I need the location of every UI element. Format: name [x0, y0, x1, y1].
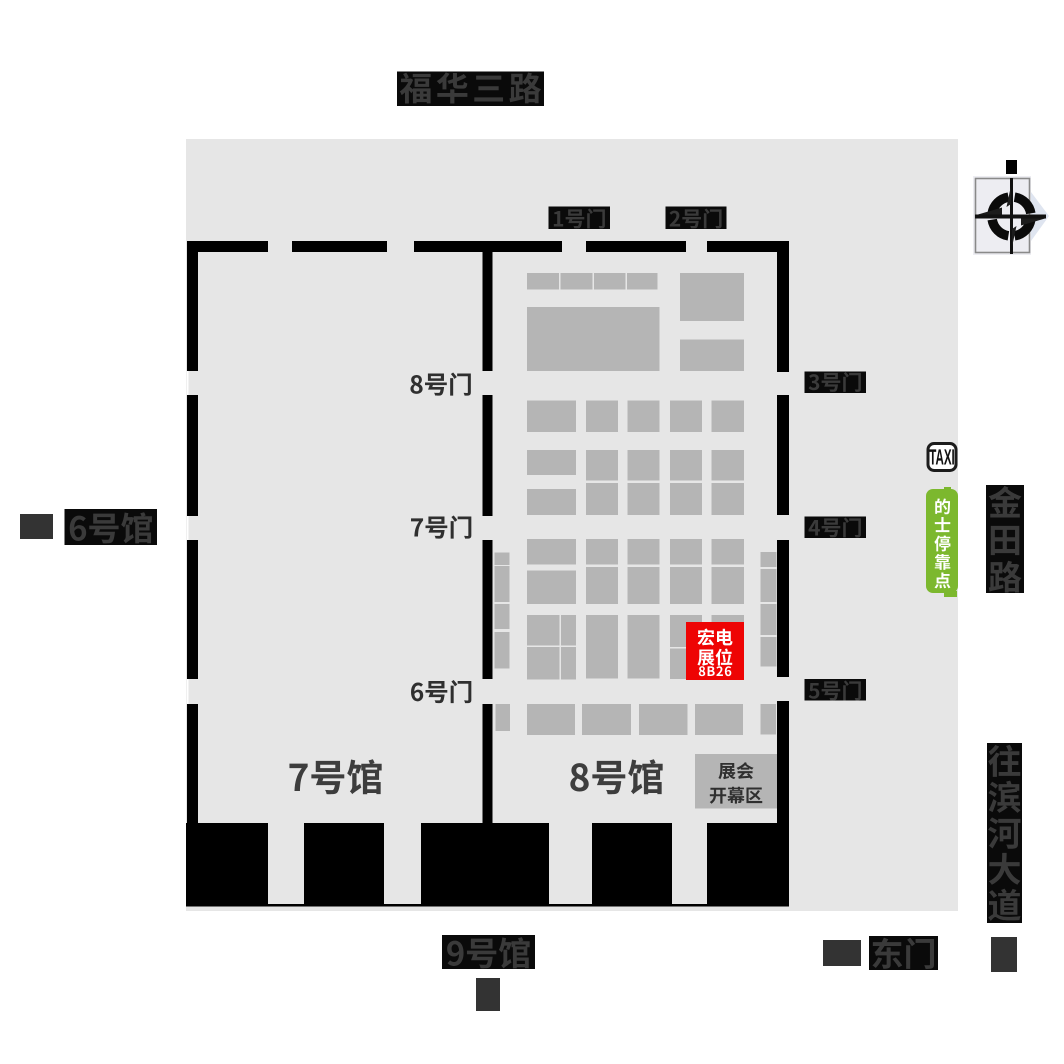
svg-text:TAXI: TAXI — [929, 445, 955, 470]
